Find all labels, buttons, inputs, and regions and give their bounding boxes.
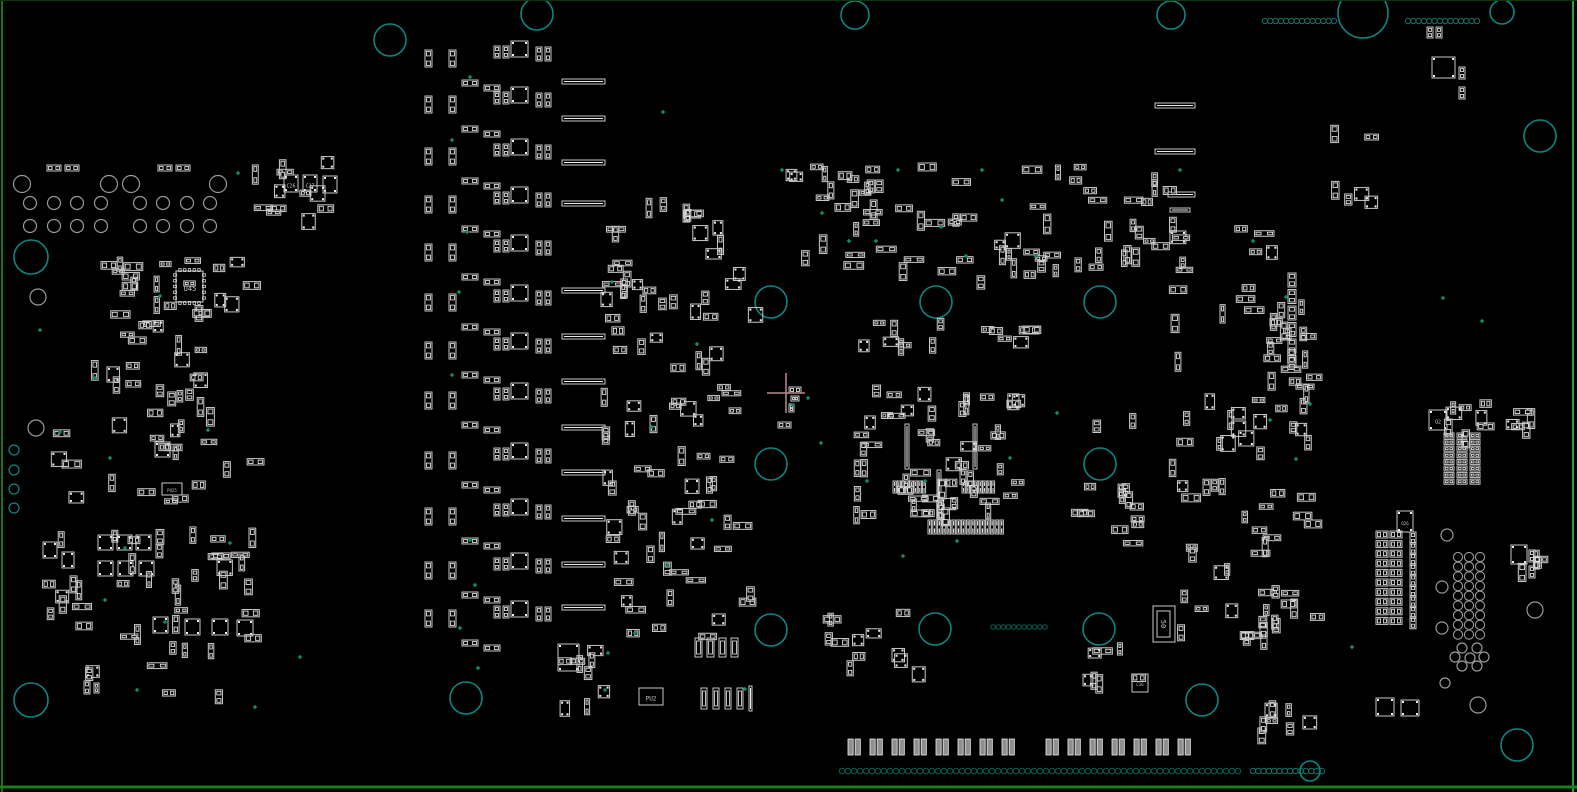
pin-mark xyxy=(525,298,527,300)
pin-mark xyxy=(63,565,65,567)
pin-mark xyxy=(311,198,313,200)
component-pad xyxy=(1123,252,1126,256)
component-pad xyxy=(952,499,956,502)
pin-mark xyxy=(176,364,178,366)
component-pad xyxy=(791,408,793,410)
pin-mark xyxy=(1266,714,1268,716)
component-pad xyxy=(1378,590,1381,594)
component-pad xyxy=(547,195,550,199)
component-pad xyxy=(1463,461,1466,463)
pin-mark xyxy=(512,88,514,90)
component-pad xyxy=(899,415,904,417)
pad-pair xyxy=(1097,739,1102,755)
pin-mark xyxy=(720,222,722,224)
pin-mark xyxy=(512,500,514,502)
component-pad xyxy=(451,403,455,407)
component-pad xyxy=(1025,251,1029,254)
connector-slot xyxy=(727,691,730,706)
pin-mark xyxy=(1377,699,1379,701)
component-pad xyxy=(130,567,134,572)
component-pad xyxy=(451,296,455,300)
component-pad xyxy=(908,488,912,493)
pin-mark xyxy=(81,500,83,502)
pin-mark xyxy=(749,309,751,311)
pin-mark xyxy=(694,227,696,229)
component-pad xyxy=(997,434,999,438)
component-pad xyxy=(1291,601,1295,606)
pin-mark xyxy=(1009,395,1011,397)
component-pad xyxy=(464,82,468,85)
component-pad xyxy=(464,276,468,279)
pin-mark xyxy=(787,178,789,180)
component-pad xyxy=(852,191,857,196)
component-pad xyxy=(665,570,670,573)
via-dot xyxy=(1103,768,1109,774)
component-pad xyxy=(1383,609,1386,613)
pin-mark xyxy=(1355,197,1357,199)
pin-mark xyxy=(1206,395,1208,397)
component-pad xyxy=(156,298,158,302)
component-pad xyxy=(1259,738,1264,742)
component-pad xyxy=(725,548,729,550)
component-pad xyxy=(1178,440,1182,445)
component-pad xyxy=(1229,412,1231,417)
pin-mark xyxy=(52,453,54,455)
pcb-assembly-canvas[interactable]: U45C26C27PU2PU2550C16Q2Q26 xyxy=(0,0,1577,792)
component-pad xyxy=(1136,542,1141,544)
component-pad xyxy=(1082,166,1085,169)
component-pad xyxy=(49,609,53,612)
pin-mark xyxy=(295,176,297,178)
drill-hole xyxy=(1475,620,1484,629)
component-pad xyxy=(86,683,89,686)
fiducial-mark xyxy=(468,75,473,80)
pin-mark xyxy=(99,573,101,575)
drill-hole xyxy=(24,220,37,233)
pin-mark xyxy=(694,416,696,418)
pin-mark xyxy=(225,620,227,622)
component-pad xyxy=(1378,571,1381,575)
component-pad xyxy=(1171,287,1176,292)
component-pad xyxy=(1438,34,1441,37)
component-pad xyxy=(1520,575,1525,580)
component-pad xyxy=(1476,474,1479,476)
via-dot xyxy=(991,625,996,630)
fiducial-mark xyxy=(38,328,43,333)
component-pad xyxy=(160,664,165,667)
pcb-drawing: U45C26C27PU2PU2550C16Q2Q26 xyxy=(0,0,1577,792)
component-pad xyxy=(726,517,730,521)
component-pad xyxy=(610,267,614,271)
component-pad xyxy=(1013,481,1016,484)
component-pad xyxy=(505,48,508,51)
component-pad xyxy=(1213,481,1217,484)
component-pad xyxy=(129,292,133,295)
mounting-hole xyxy=(1501,729,1533,761)
component-pad xyxy=(972,487,976,490)
drill-hole xyxy=(1475,591,1484,600)
component-pad xyxy=(1308,376,1312,379)
component-pad xyxy=(661,545,663,550)
component-pad xyxy=(1446,429,1451,433)
pin-mark xyxy=(110,562,112,564)
component-pad xyxy=(253,611,257,615)
refdes-label: C16 xyxy=(1136,682,1144,687)
drill-hole xyxy=(1464,552,1473,561)
pin-mark xyxy=(322,166,324,168)
pin-mark xyxy=(213,620,215,622)
via-dot xyxy=(1027,625,1032,630)
component-pad xyxy=(1397,561,1400,565)
component-pad xyxy=(281,207,285,210)
pin-mark xyxy=(1304,424,1306,426)
component-pad xyxy=(1153,244,1158,248)
component-pad xyxy=(1253,552,1258,555)
pin-mark xyxy=(1447,416,1449,418)
pin-mark xyxy=(1430,427,1432,429)
via-dot xyxy=(983,768,989,774)
pin-mark xyxy=(1512,561,1514,563)
pin-mark xyxy=(1410,512,1412,514)
component-pad xyxy=(965,408,967,413)
component-pad xyxy=(1333,183,1337,188)
component-pad xyxy=(1459,474,1462,476)
component-pad xyxy=(1279,304,1283,308)
component-pad xyxy=(427,52,431,56)
pin-mark xyxy=(867,635,869,637)
component-pad xyxy=(86,689,89,692)
component-pad xyxy=(1300,301,1302,305)
mounting-hole xyxy=(755,286,787,318)
component-pad xyxy=(1226,571,1228,574)
component-pad xyxy=(897,206,901,210)
component-pad xyxy=(1013,271,1016,276)
pin-mark xyxy=(629,597,631,599)
pin-mark xyxy=(872,426,874,428)
component-pad xyxy=(547,56,550,60)
pin-mark xyxy=(1416,701,1418,703)
component-pad xyxy=(427,564,431,568)
component-pad xyxy=(184,645,186,649)
component-pad xyxy=(1472,468,1475,470)
pin-mark xyxy=(1452,58,1454,60)
component-pad xyxy=(1165,188,1168,193)
component-pad xyxy=(505,613,508,616)
component-pad xyxy=(464,374,468,377)
pin-mark xyxy=(195,385,197,387)
via-dot xyxy=(1284,18,1289,23)
component-pad xyxy=(729,458,733,461)
via-dot xyxy=(1079,768,1085,774)
component-pad xyxy=(124,582,127,585)
component-pad xyxy=(721,458,725,461)
mounting-holes-layer xyxy=(9,0,1556,781)
component-pad xyxy=(148,582,150,586)
drill-hole xyxy=(1450,652,1460,662)
component-pad xyxy=(654,626,657,630)
component-pad xyxy=(862,461,866,465)
pin-mark xyxy=(722,615,724,617)
component-pad xyxy=(901,264,906,269)
component-pad xyxy=(1025,328,1030,332)
component-pad xyxy=(987,513,989,517)
component-pad xyxy=(221,573,226,578)
component-pad xyxy=(1035,328,1040,332)
via-dot xyxy=(857,768,863,774)
pin-mark xyxy=(238,621,240,623)
component-pad xyxy=(1467,406,1470,409)
component-pad xyxy=(547,507,550,511)
component-pad xyxy=(1261,528,1265,531)
component-pad xyxy=(818,197,821,199)
component-pad xyxy=(451,454,455,458)
pin-mark xyxy=(800,173,802,175)
component-pad xyxy=(843,640,848,645)
component-pad xyxy=(185,167,189,170)
pin-mark xyxy=(512,512,514,514)
pin-mark xyxy=(686,490,688,492)
component-pad xyxy=(547,451,550,455)
pin-mark xyxy=(1484,412,1486,414)
fiducial-mark xyxy=(1008,456,1013,461)
pin-mark xyxy=(1375,197,1377,199)
component-pad xyxy=(1525,410,1530,413)
component-pad xyxy=(1412,539,1415,542)
component-pad xyxy=(319,206,323,211)
component-pad xyxy=(652,417,656,421)
component-pad xyxy=(427,510,431,514)
component-pad xyxy=(965,397,967,402)
component-pad xyxy=(494,545,498,548)
component-pad xyxy=(1171,227,1175,231)
fiducial-mark xyxy=(476,666,481,671)
pin-mark xyxy=(512,200,514,202)
pin-mark xyxy=(1433,75,1435,77)
component-pad xyxy=(912,471,917,475)
drill-hole xyxy=(1436,622,1448,634)
pin-mark xyxy=(713,615,715,617)
mounting-hole xyxy=(1338,0,1388,38)
pin-mark xyxy=(512,602,514,604)
component-pad xyxy=(1265,356,1269,360)
component-pad xyxy=(578,667,581,671)
component-pad xyxy=(451,107,455,111)
pin-mark xyxy=(942,499,944,501)
pin-mark xyxy=(682,413,684,415)
component-pad xyxy=(855,231,857,235)
drill-hole xyxy=(30,289,46,305)
component-pad xyxy=(1265,606,1268,609)
component-pad xyxy=(1476,454,1479,456)
component-pad xyxy=(1319,615,1323,619)
component-pad xyxy=(560,659,563,663)
component-pad xyxy=(628,631,631,635)
mounting-hole xyxy=(1084,286,1116,318)
component-pad xyxy=(538,49,541,53)
component-pad xyxy=(904,476,907,480)
component-pad xyxy=(85,605,90,608)
pin-mark xyxy=(720,358,722,360)
pin-mark xyxy=(334,190,336,192)
component-pad xyxy=(1249,297,1254,301)
pin-mark xyxy=(512,554,514,556)
component-pad xyxy=(451,612,455,616)
component-pad xyxy=(451,198,455,202)
pin-mark xyxy=(1017,234,1019,236)
component-pad xyxy=(547,391,550,395)
pin-mark xyxy=(512,100,514,102)
component-pad xyxy=(486,281,490,284)
via-dot xyxy=(1305,18,1310,23)
via-dot xyxy=(1310,18,1315,23)
pin-mark xyxy=(66,591,68,593)
component-pad xyxy=(505,194,508,197)
component-pad xyxy=(680,448,684,453)
component-pad xyxy=(220,537,224,540)
component-pad xyxy=(639,349,643,353)
fiducial-mark xyxy=(780,168,785,173)
pin-mark xyxy=(1014,345,1016,347)
via-dot xyxy=(1261,768,1267,774)
pin-mark xyxy=(1212,395,1214,397)
component-pad xyxy=(1383,600,1386,604)
component-pad xyxy=(615,316,619,321)
component-pad xyxy=(1260,623,1265,626)
fiducial-mark xyxy=(955,539,960,544)
component-pad xyxy=(1472,441,1475,443)
component-pad xyxy=(1383,561,1386,565)
component-pad xyxy=(950,269,955,273)
pin-mark xyxy=(615,552,617,554)
component-pad xyxy=(699,455,702,458)
fiducial-mark xyxy=(1480,319,1485,324)
component-pad xyxy=(472,326,476,329)
component-pad xyxy=(61,607,65,612)
drill-hole xyxy=(1453,591,1462,600)
pin-mark xyxy=(911,406,913,408)
component-pad xyxy=(486,87,490,90)
component-pad xyxy=(1332,137,1337,141)
component-pad xyxy=(187,391,192,394)
component-pad xyxy=(505,292,508,295)
pin-mark xyxy=(922,679,924,681)
component-pad xyxy=(1276,339,1280,342)
component-pad xyxy=(1097,257,1100,261)
pin-mark xyxy=(794,170,796,172)
pin-mark xyxy=(512,346,514,348)
via-dot xyxy=(1458,18,1463,23)
component-pad xyxy=(1291,423,1295,426)
component-pad xyxy=(856,462,859,466)
refdes-label: C27 xyxy=(305,184,314,190)
component-pad xyxy=(1131,415,1134,419)
connector-slot xyxy=(715,691,718,706)
component-pad xyxy=(132,284,136,289)
component-pad xyxy=(954,215,957,218)
pin-mark xyxy=(628,402,630,404)
pad-pair xyxy=(1185,739,1190,755)
component-pad xyxy=(1383,552,1386,556)
pin-mark xyxy=(628,408,630,410)
via-rows-layer xyxy=(839,18,1479,774)
component-pad xyxy=(1106,649,1111,652)
pad-pair xyxy=(1163,739,1168,755)
refdes-label: Q26 xyxy=(1401,521,1409,526)
pin-mark xyxy=(787,170,789,172)
component-pad xyxy=(1301,329,1305,333)
component-pad xyxy=(87,676,91,679)
component-pad xyxy=(281,161,285,166)
pin-mark xyxy=(303,215,305,217)
drill-hole xyxy=(204,197,217,210)
component-pad xyxy=(494,331,498,334)
component-pad xyxy=(1291,429,1295,432)
component-pad xyxy=(149,664,154,667)
component-pad xyxy=(1472,461,1475,463)
component-pad xyxy=(1290,275,1295,279)
component-pad xyxy=(547,609,550,613)
component-pad xyxy=(1397,600,1400,604)
via-dot xyxy=(1271,768,1277,774)
via-dot xyxy=(1181,768,1187,774)
component-pad xyxy=(1287,705,1290,708)
pin-mark xyxy=(1314,726,1316,728)
drill-hole xyxy=(157,220,170,233)
pin-mark xyxy=(1185,489,1187,491)
component-pad xyxy=(494,133,498,136)
component-pad xyxy=(171,691,174,694)
component-pad xyxy=(1106,234,1111,239)
component-pad xyxy=(1071,178,1074,182)
component-pad xyxy=(1305,397,1307,402)
drill-hole xyxy=(1464,562,1473,571)
pin-mark xyxy=(860,349,862,351)
pin-mark xyxy=(896,664,898,666)
drill-hole xyxy=(14,176,31,193)
pin-mark xyxy=(604,471,606,473)
component-pad xyxy=(1304,352,1306,356)
component-pad xyxy=(604,428,608,431)
pin-mark xyxy=(599,695,601,697)
component-pad xyxy=(875,168,879,172)
component-pad xyxy=(494,379,498,382)
component-pad xyxy=(1459,435,1462,437)
component-pad xyxy=(1378,533,1381,537)
drill-hole xyxy=(1470,697,1486,713)
component-pad xyxy=(225,463,229,467)
pin-mark xyxy=(172,434,174,436)
via-dot xyxy=(1250,768,1256,774)
component-pad xyxy=(1257,250,1260,253)
component-pad xyxy=(1094,428,1099,431)
component-pad xyxy=(901,274,906,279)
component-pad xyxy=(989,395,993,398)
component-pad xyxy=(547,341,550,345)
component-pad xyxy=(803,252,808,256)
component-pad xyxy=(472,128,476,131)
via-dot xyxy=(1037,768,1043,774)
pin-mark xyxy=(1240,432,1242,434)
connector-slot xyxy=(739,691,742,706)
component-pad xyxy=(971,216,975,220)
component-pad xyxy=(1446,461,1449,463)
connector-slot xyxy=(709,641,713,654)
pin-mark xyxy=(861,636,863,638)
component-pad xyxy=(427,305,431,309)
component-pad xyxy=(93,362,97,367)
via-dot xyxy=(1421,18,1426,23)
component-pad xyxy=(1290,298,1295,302)
